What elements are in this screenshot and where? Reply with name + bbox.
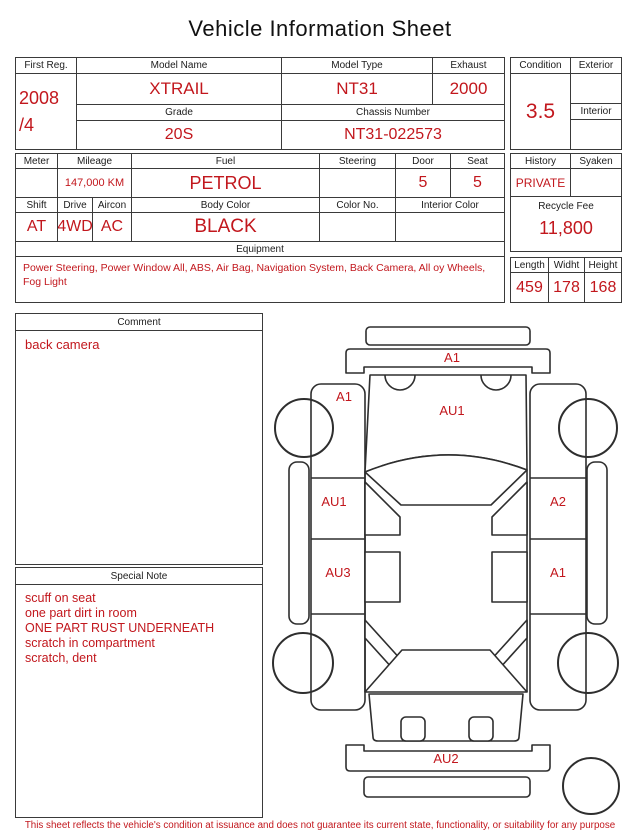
aircon-header: Aircon xyxy=(93,198,132,213)
damage-label-left-front-fender: A1 xyxy=(336,389,352,404)
length-value: 459 xyxy=(511,273,549,302)
comment-box: Comment back camera xyxy=(15,313,263,565)
door-value: 5 xyxy=(396,169,451,198)
first-reg-header: First Reg. xyxy=(16,58,77,74)
fuel-header: Fuel xyxy=(132,154,320,169)
recycle-fee-value: 11,800 xyxy=(511,218,621,239)
left-b-pillar xyxy=(365,552,400,602)
shift-header: Shift xyxy=(16,198,58,213)
exhaust-header: Exhaust xyxy=(433,58,504,74)
rear-hatch xyxy=(369,694,523,741)
vehicle-information-sheet: Vehicle Information Sheet First Reg. Mod… xyxy=(0,0,640,835)
spare-tire xyxy=(563,758,619,814)
model-info-table: First Reg. Model Name Model Type Exhaust… xyxy=(15,57,505,150)
width-value: 178 xyxy=(549,273,585,302)
model-name-header: Model Name xyxy=(77,58,282,74)
interior-header: Interior xyxy=(571,104,621,120)
model-type-value: NT31 xyxy=(282,74,433,105)
comment-text: back camera xyxy=(16,331,262,359)
steering-header: Steering xyxy=(320,154,396,169)
equipment-line-1: Power Steering, Power Window All, ABS, A… xyxy=(23,262,430,274)
damage-label-right-front-door: A2 xyxy=(550,494,566,509)
mileage-header: Mileage xyxy=(58,154,132,169)
damage-label-hood: AU1 xyxy=(439,403,464,418)
grade-value: 20S xyxy=(77,121,282,149)
exterior-value xyxy=(571,74,621,104)
chassis-number-header: Chassis Number xyxy=(282,105,504,121)
special-note-box: Special Note scuff on seat one part dirt… xyxy=(15,567,263,818)
body-color-value: BLACK xyxy=(132,213,320,242)
width-header: Widht xyxy=(549,258,585,273)
special-note-line: scratch in compartment xyxy=(25,636,253,651)
aircon-value: AC xyxy=(93,213,132,242)
disclaimer-text: This sheet reflects the vehicle's condit… xyxy=(0,820,640,831)
comment-header: Comment xyxy=(16,314,262,331)
grade-header: Grade xyxy=(77,105,282,121)
rear-lower-bar xyxy=(364,777,530,797)
right-sill xyxy=(587,462,607,624)
door-header: Door xyxy=(396,154,451,169)
damage-label-left-front-door: AU1 xyxy=(321,494,346,509)
dimensions-table: Length Widht Height 459 178 168 xyxy=(510,257,622,303)
damage-label-rear-bumper: AU2 xyxy=(433,751,458,766)
steering-value xyxy=(320,169,396,198)
right-b-pillar xyxy=(492,552,527,602)
drive-value: 4WD xyxy=(58,213,93,242)
color-no-value xyxy=(320,213,396,242)
first-reg-year: 2008 xyxy=(19,85,59,111)
length-header: Length xyxy=(511,258,549,273)
first-reg-value: 2008 /4 xyxy=(16,74,77,149)
history-table: History Syaken PRIVATE xyxy=(510,153,622,197)
syaken-value xyxy=(571,169,621,196)
condition-table: Condition Exterior 3.5 Interior xyxy=(510,57,622,150)
fuel-value: PETROL xyxy=(132,169,320,198)
damage-label-left-rear-door: AU3 xyxy=(325,565,350,580)
special-note-header: Special Note xyxy=(16,568,262,585)
drive-header: Drive xyxy=(58,198,93,213)
equipment-header: Equipment xyxy=(16,242,504,257)
special-note-line: one part dirt in room xyxy=(25,606,253,621)
spec-table: Meter Mileage Fuel Steering Door Seat 14… xyxy=(15,153,505,303)
recycle-fee-box: Recycle Fee 11,800 xyxy=(510,196,622,252)
special-note-line: scratch, dent xyxy=(25,651,253,666)
model-type-header: Model Type xyxy=(282,58,433,74)
body-color-header: Body Color xyxy=(132,198,320,213)
special-note-line: ONE PART RUST UNDERNEATH xyxy=(25,621,253,636)
interior-value xyxy=(571,120,621,149)
meter-value xyxy=(16,169,58,198)
recycle-fee-header: Recycle Fee xyxy=(511,201,621,212)
left-side-panel xyxy=(311,384,365,710)
page-title: Vehicle Information Sheet xyxy=(0,16,640,42)
height-value: 168 xyxy=(585,273,621,302)
equipment-value: Power Steering, Power Window All, ABS, A… xyxy=(16,257,504,302)
color-no-header: Color No. xyxy=(320,198,396,213)
history-header: History xyxy=(511,154,571,169)
exhaust-value: 2000 xyxy=(433,74,504,105)
shift-value: AT xyxy=(16,213,58,242)
front-grille-bar xyxy=(366,327,530,345)
mileage-value: 147,000 KM xyxy=(58,169,132,198)
height-header: Height xyxy=(585,258,621,273)
exterior-header: Exterior xyxy=(571,58,621,74)
damage-label-right-rear-door: A1 xyxy=(550,565,566,580)
left-sill xyxy=(289,462,309,624)
special-note-line: scuff on seat xyxy=(25,591,253,606)
syaken-header: Syaken xyxy=(571,154,621,169)
damage-label-front-bumper: A1 xyxy=(444,350,460,365)
seat-header: Seat xyxy=(451,154,504,169)
interior-color-value xyxy=(396,213,504,242)
first-reg-month: /4 xyxy=(19,112,34,138)
condition-header: Condition xyxy=(511,58,571,74)
car-damage-diagram: A1 A1 AU1 AU1 AU3 A2 A1 AU2 xyxy=(270,315,640,835)
history-value: PRIVATE xyxy=(511,169,571,196)
interior-color-header: Interior Color xyxy=(396,198,504,213)
seat-value: 5 xyxy=(451,169,504,198)
meter-header: Meter xyxy=(16,154,58,169)
chassis-number-value: NT31-022573 xyxy=(282,121,504,149)
condition-value: 3.5 xyxy=(511,74,571,149)
special-note-text: scuff on seat one part dirt in room ONE … xyxy=(16,585,262,672)
model-name-value: XTRAIL xyxy=(77,74,282,105)
